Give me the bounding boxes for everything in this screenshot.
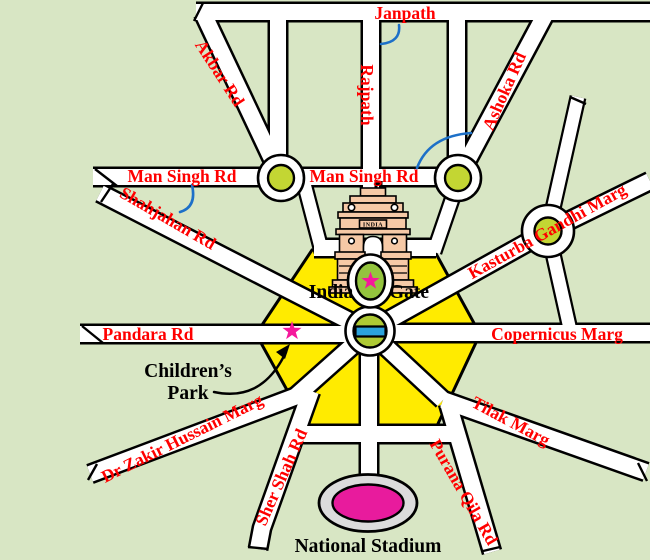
roundabout-ashoka (435, 155, 481, 201)
label-childrens-park-line1: Children’s (144, 361, 232, 382)
central-circle (346, 307, 395, 356)
roundabout-man-singh-west (258, 155, 304, 201)
road-label-copernicus: Copernicus Marg (491, 324, 623, 344)
label-national-stadium: National Stadium (295, 536, 442, 557)
national-stadium-ellipse (319, 475, 417, 532)
monument-inscription: INDIA (363, 223, 383, 229)
label-india-gate-right: Gate (389, 282, 429, 303)
label-india-gate-left: India (309, 282, 354, 303)
india-gate-circle (348, 255, 393, 308)
road-label-rajpath: Rajpath (357, 64, 377, 126)
label-childrens-park-line2: Park (167, 383, 208, 404)
road-label-man-singh-east: Man Singh Rd (310, 166, 419, 186)
road-label-man-singh-west: Man Singh Rd (128, 166, 237, 186)
canopy-marker (356, 327, 386, 337)
road-label-janpath: Janpath (374, 3, 436, 23)
india-gate-map: INDIA (0, 0, 650, 560)
road-label-pandara: Pandara Rd (103, 324, 194, 344)
